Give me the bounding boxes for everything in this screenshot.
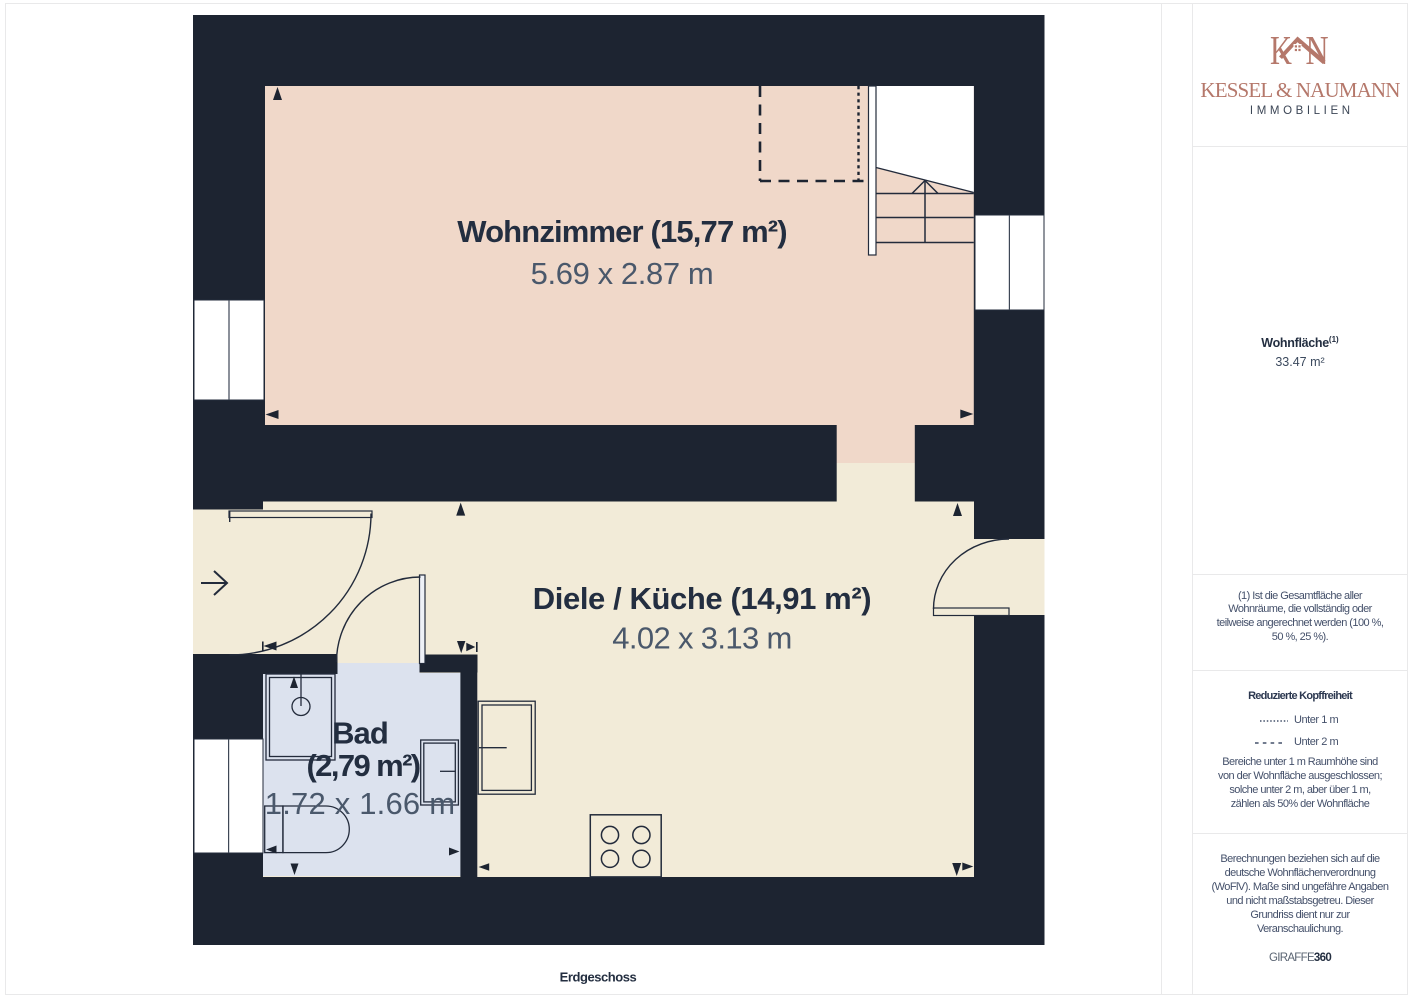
svg-text:(2,79 m²): (2,79 m²) (306, 748, 419, 783)
svg-text:Wohnzimmer (15,77 m²): Wohnzimmer (15,77 m²) (457, 214, 787, 249)
svg-text:Erdgeschoss: Erdgeschoss (560, 970, 637, 985)
svg-text:5.69 x 2.87 m: 5.69 x 2.87 m (531, 256, 714, 291)
svg-text:Bad: Bad (332, 716, 388, 751)
svg-text:1.72 x 1.66 m: 1.72 x 1.66 m (265, 786, 455, 821)
svg-text:4.02 x 3.13 m: 4.02 x 3.13 m (612, 621, 791, 656)
svg-text:Diele / Küche (14,91 m²): Diele / Küche (14,91 m²) (533, 581, 871, 616)
